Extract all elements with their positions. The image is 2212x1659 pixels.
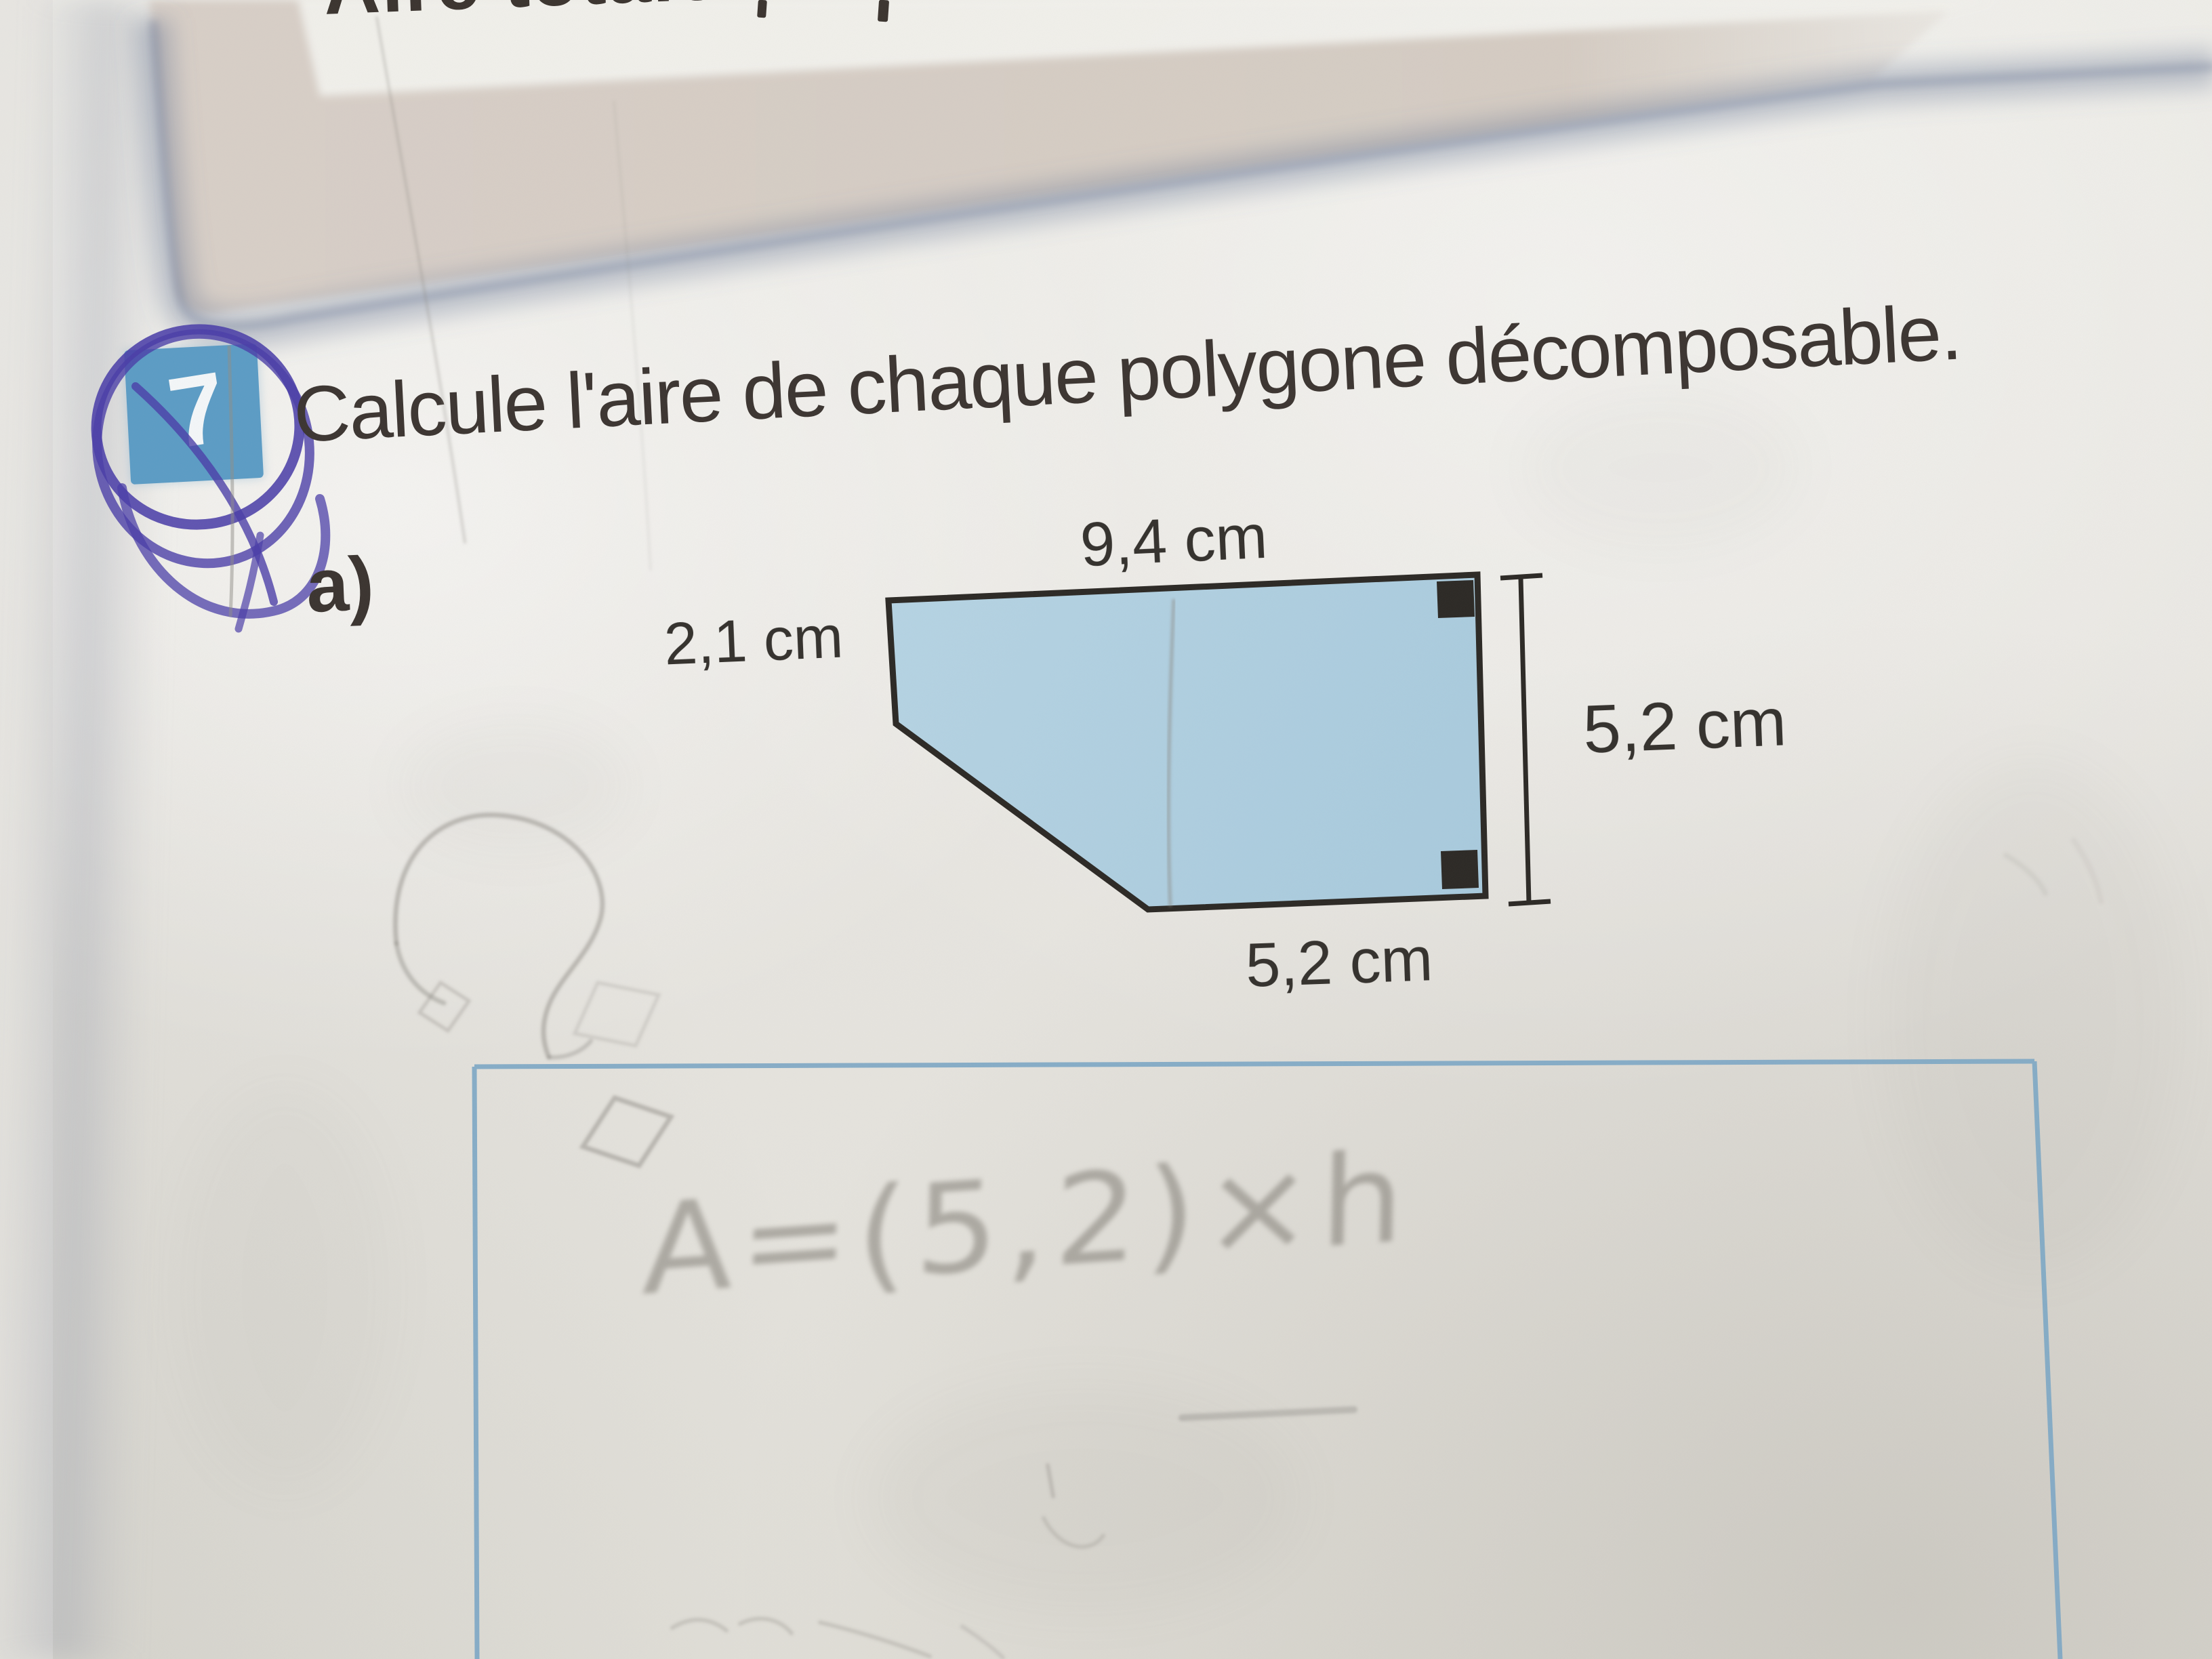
photo-of-workbook-page: Aire totale 7 Calcule l'aire de chaque p…: [0, 0, 2212, 1659]
paper-grain-overlay: [0, 0, 2212, 1659]
